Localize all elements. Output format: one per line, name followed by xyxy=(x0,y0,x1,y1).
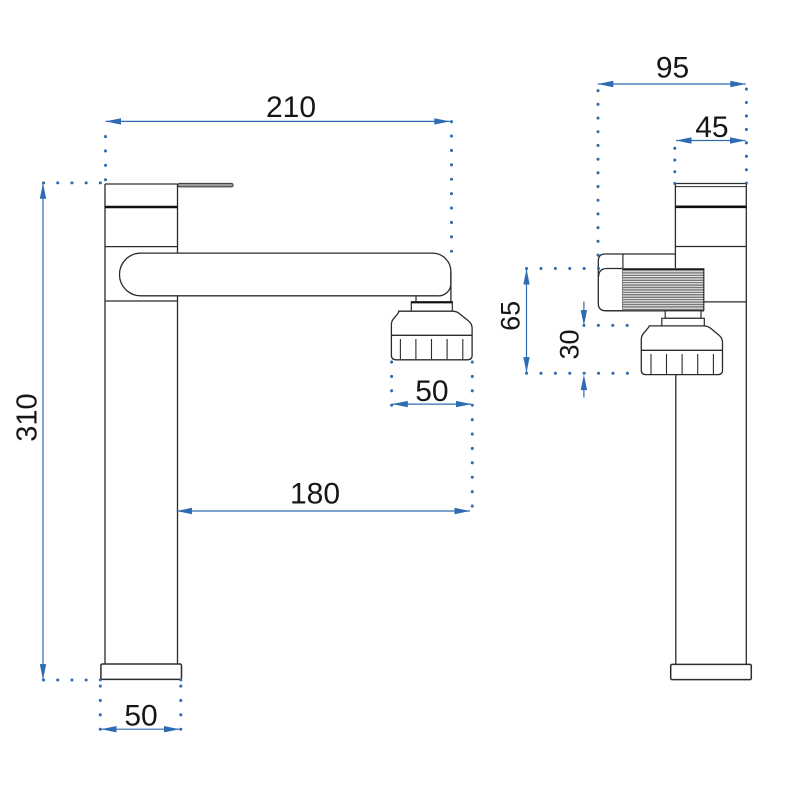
svg-text:210: 210 xyxy=(266,91,316,124)
svg-text:180: 180 xyxy=(290,477,340,510)
svg-text:50: 50 xyxy=(124,699,157,732)
svg-text:50: 50 xyxy=(415,375,448,408)
svg-text:65: 65 xyxy=(496,301,526,331)
svg-text:310: 310 xyxy=(12,393,44,441)
svg-text:30: 30 xyxy=(555,329,585,359)
svg-text:95: 95 xyxy=(656,52,689,85)
svg-text:45: 45 xyxy=(695,111,728,144)
